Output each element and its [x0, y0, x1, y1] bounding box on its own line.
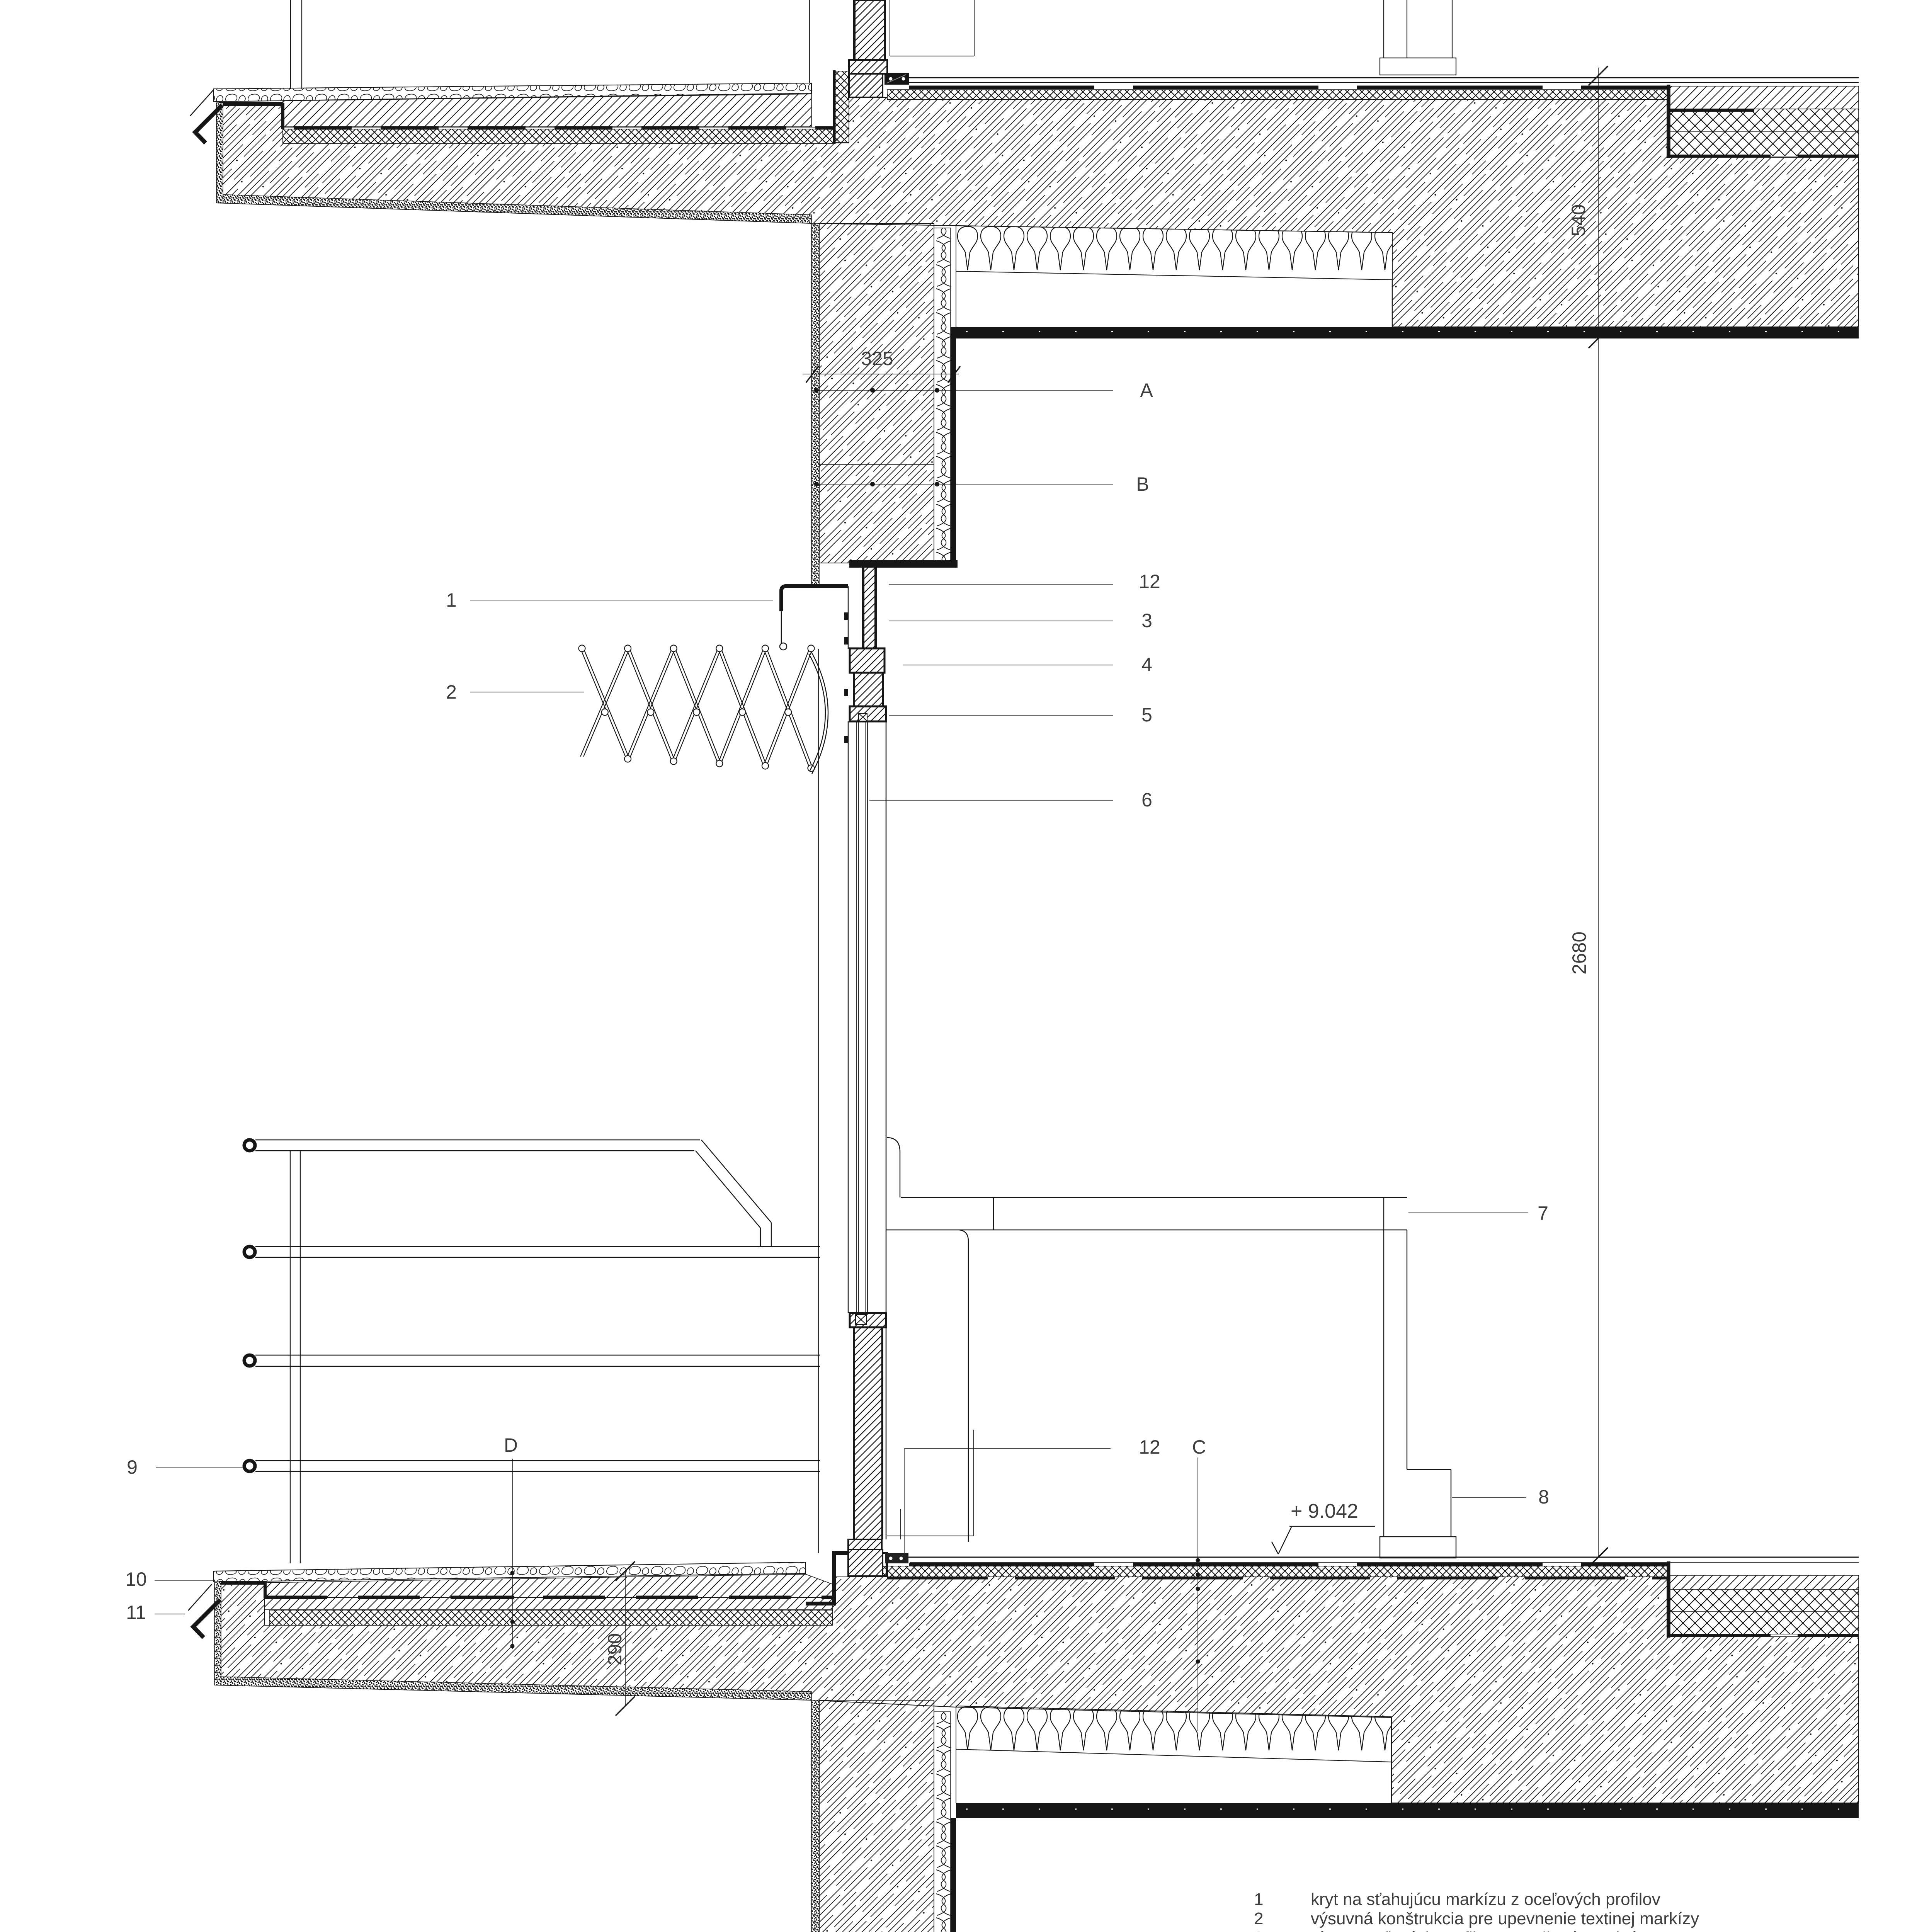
svg-text:8: 8	[1538, 1486, 1549, 1508]
svg-text:1: 1	[1254, 1890, 1263, 1909]
svg-text:4: 4	[1141, 654, 1152, 675]
svg-text:12: 12	[1139, 1436, 1160, 1458]
svg-text:D: D	[504, 1434, 518, 1456]
svg-text:9: 9	[127, 1456, 138, 1478]
svg-text:2: 2	[1254, 1909, 1263, 1928]
svg-text:5: 5	[1141, 704, 1152, 726]
svg-text:2680: 2680	[1568, 932, 1590, 975]
svg-text:A: A	[1140, 379, 1153, 401]
svg-text:výsuvná konštrukcia pre upevne: výsuvná konštrukcia pre upevnenie textin…	[1311, 1909, 1699, 1928]
svg-text:C: C	[1192, 1436, 1206, 1458]
svg-text:B: B	[1136, 473, 1149, 495]
svg-text:kryt na sťahujúcu markízu z oc: kryt na sťahujúcu markízu z oceľových pr…	[1311, 1890, 1660, 1909]
svg-text:325: 325	[861, 348, 893, 369]
svg-text:290: 290	[604, 1633, 626, 1665]
svg-text:3: 3	[1141, 610, 1152, 631]
svg-text:+ 9.042: + 9.042	[1291, 1500, 1358, 1522]
svg-text:3: 3	[1254, 1929, 1263, 1932]
svg-text:11: 11	[126, 1602, 146, 1623]
svg-text:6: 6	[1141, 789, 1152, 811]
svg-text:7: 7	[1538, 1202, 1548, 1224]
svg-text:10: 10	[125, 1568, 147, 1590]
svg-text:12: 12	[1139, 571, 1160, 592]
svg-text:1: 1	[446, 589, 457, 611]
svg-text:rám z oceľových profilov, prer: rám z oceľových profilov, prerušený tepe…	[1311, 1929, 1679, 1932]
svg-text:2: 2	[446, 681, 457, 703]
svg-text:540: 540	[1568, 204, 1589, 236]
